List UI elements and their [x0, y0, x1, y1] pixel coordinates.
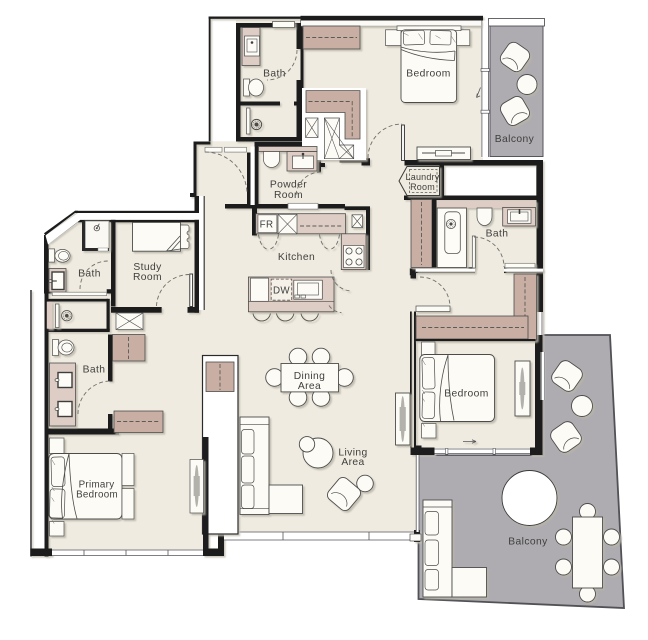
svg-text:Area: Area — [298, 381, 321, 392]
svg-text:Bedroom: Bedroom — [76, 490, 118, 501]
svg-text:Bath: Bath — [263, 69, 286, 80]
svg-text:Room: Room — [133, 272, 162, 283]
svg-text:DW: DW — [273, 286, 290, 297]
svg-text:Room: Room — [410, 182, 435, 192]
svg-text:Bedroom: Bedroom — [406, 69, 451, 80]
svg-text:Bath: Bath — [78, 269, 101, 280]
svg-text:Laundry: Laundry — [406, 172, 440, 182]
svg-text:FR: FR — [260, 220, 274, 231]
svg-text:Bath: Bath — [83, 365, 106, 376]
svg-text:Area: Area — [341, 457, 364, 468]
svg-text:Kitchen: Kitchen — [278, 252, 315, 263]
svg-text:Room: Room — [274, 190, 303, 201]
svg-text:Balcony: Balcony — [508, 537, 548, 548]
svg-text:Balcony: Balcony — [495, 134, 535, 145]
svg-text:Bath: Bath — [486, 229, 509, 240]
svg-text:Bedroom: Bedroom — [444, 389, 489, 400]
